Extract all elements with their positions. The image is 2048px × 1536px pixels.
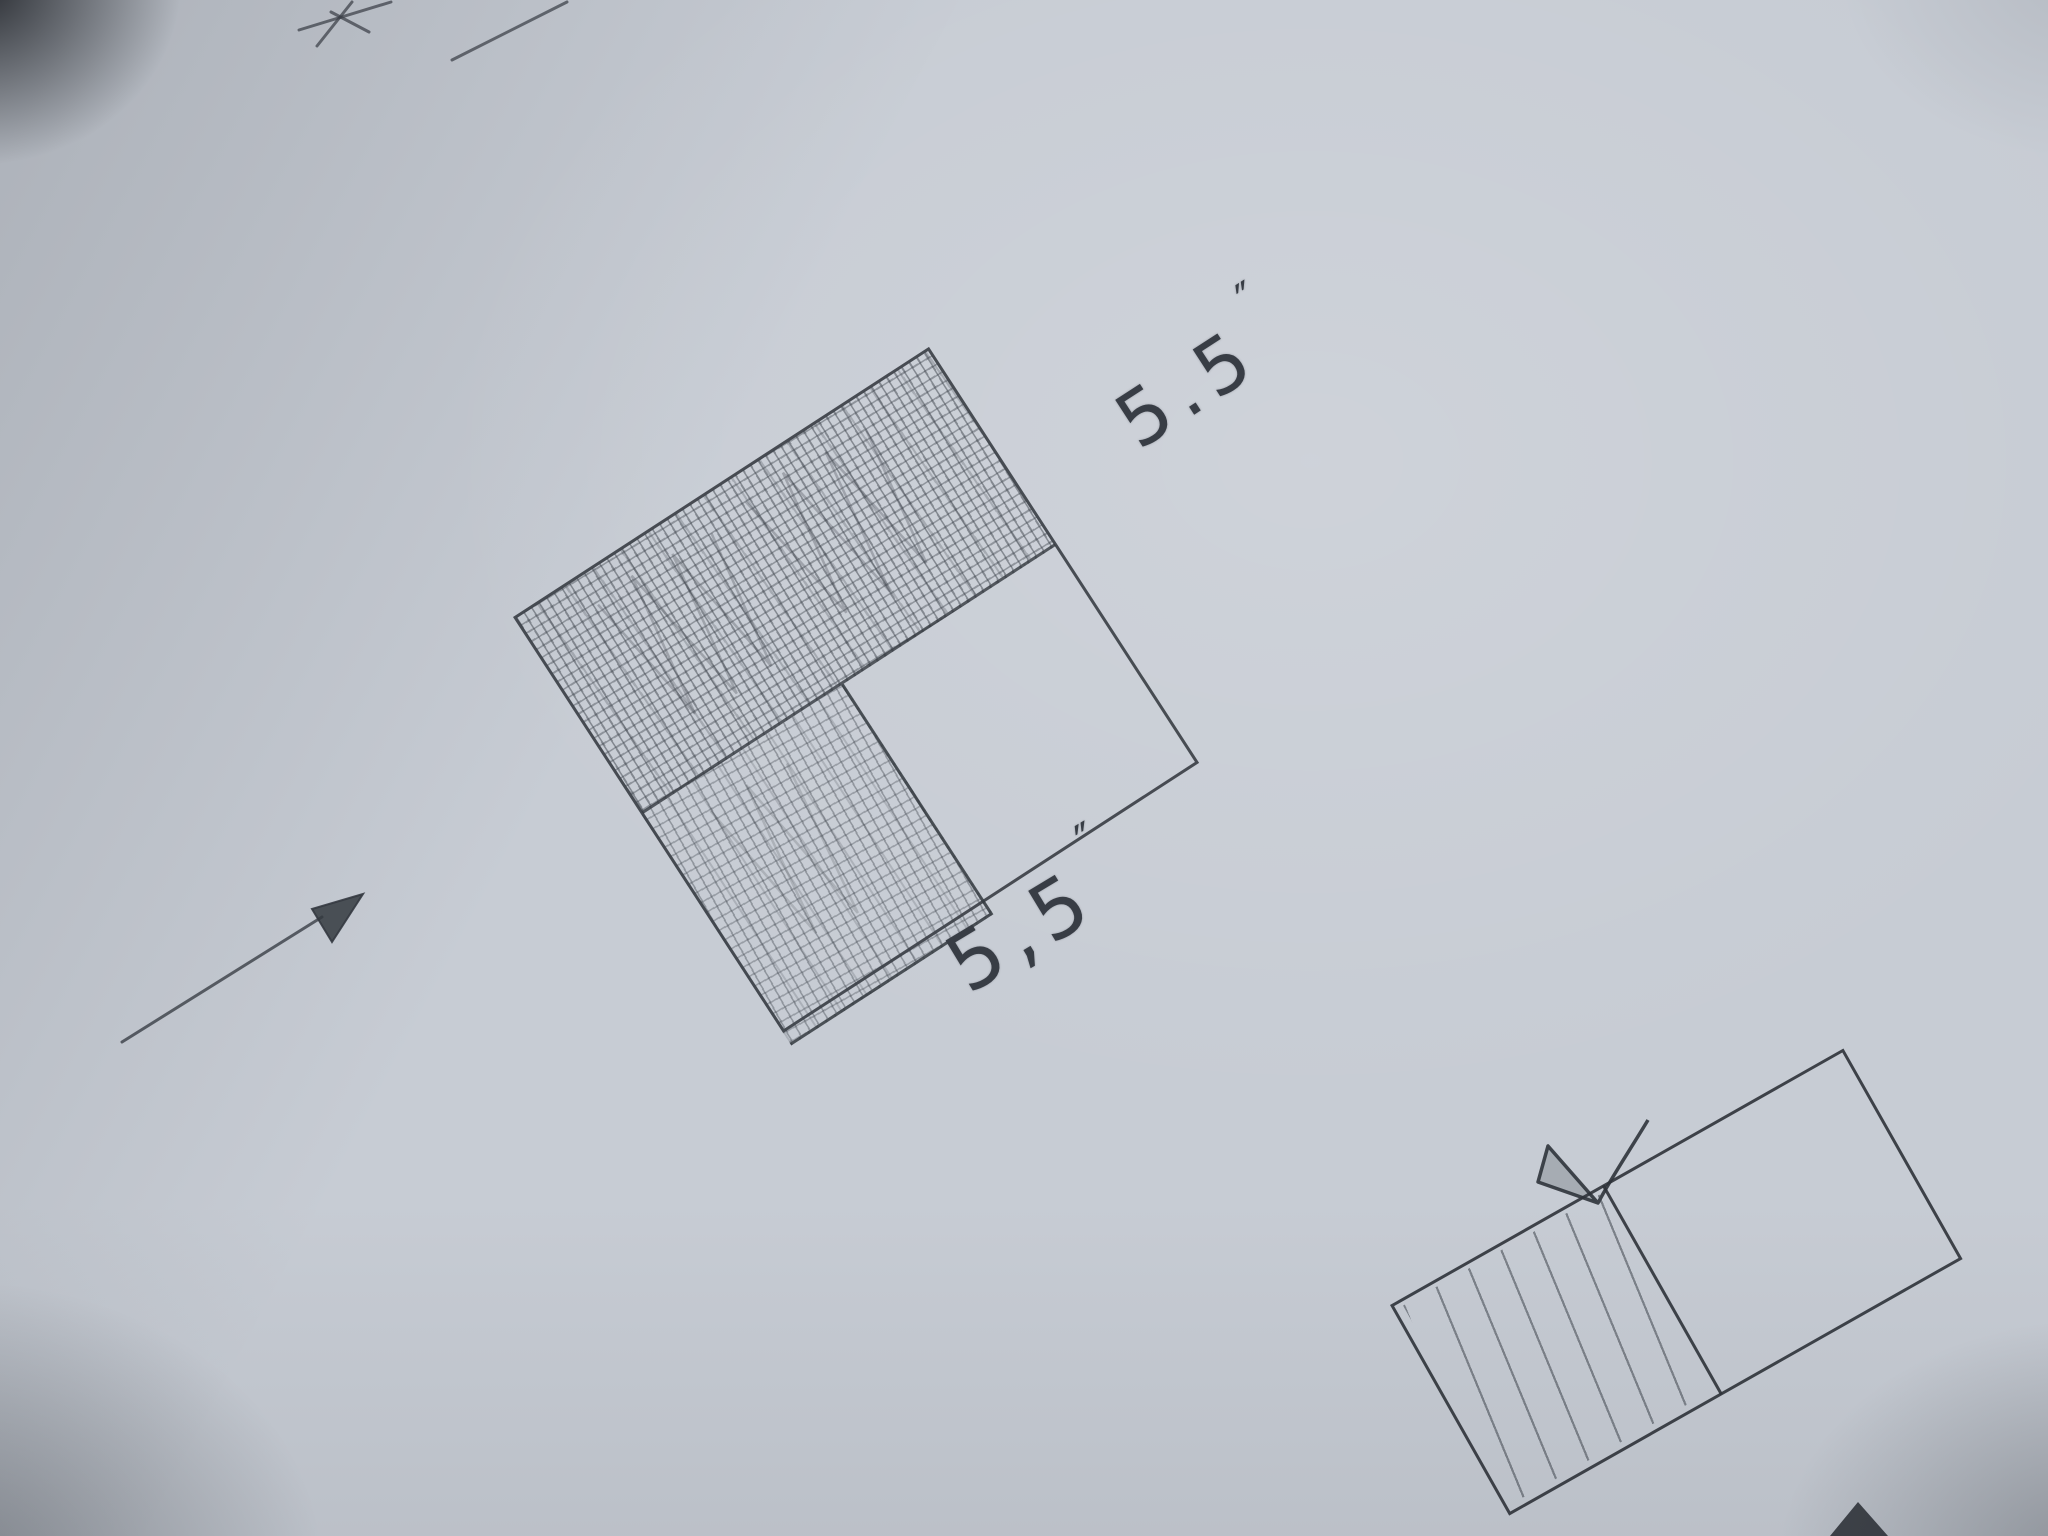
pencil-arrow (122, 894, 363, 1042)
cutoff-sketch-marks (299, 2, 567, 60)
arrow-head-icon (312, 894, 363, 942)
arrow-shaft (122, 917, 322, 1042)
paper-edge-wedge (1830, 1502, 1888, 1536)
photographed-paper: 5.5″ 5,5″ (0, 0, 2048, 1536)
